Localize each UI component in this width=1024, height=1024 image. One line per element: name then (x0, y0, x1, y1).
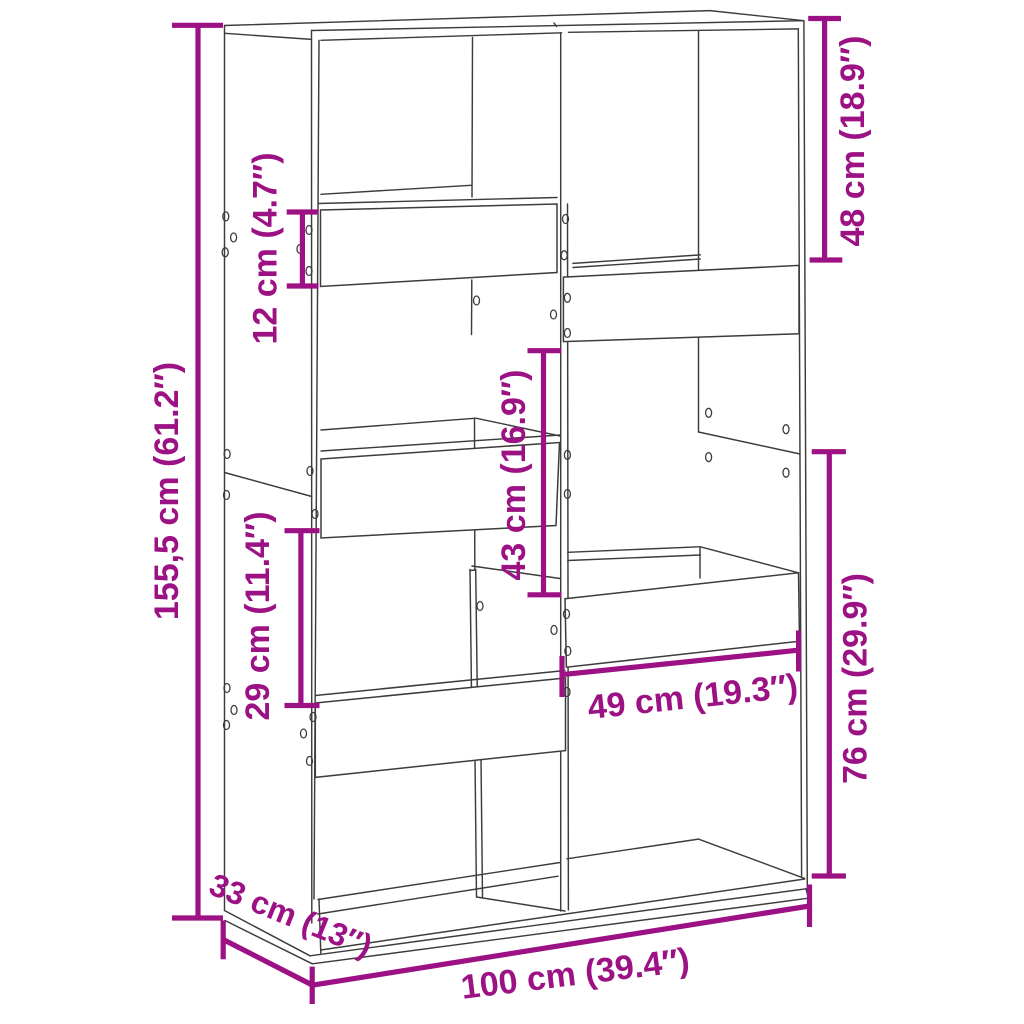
svg-text:29 cm (11.4″): 29 cm (11.4″) (239, 511, 277, 720)
svg-text:76 cm (29.9″): 76 cm (29.9″) (836, 573, 874, 784)
svg-text:48 cm (18.9″): 48 cm (18.9″) (834, 36, 872, 247)
svg-text:155,5 cm (61.2″): 155,5 cm (61.2″) (148, 362, 186, 620)
svg-text:49 cm (19.3″): 49 cm (19.3″) (586, 667, 800, 727)
svg-text:43 cm (16.9″): 43 cm (16.9″) (495, 370, 533, 581)
svg-text:33 cm (13″): 33 cm (13″) (205, 866, 378, 964)
svg-text:100 cm (39.4″): 100 cm (39.4″) (459, 941, 692, 1007)
svg-text:12 cm (4.7″): 12 cm (4.7″) (246, 152, 284, 344)
